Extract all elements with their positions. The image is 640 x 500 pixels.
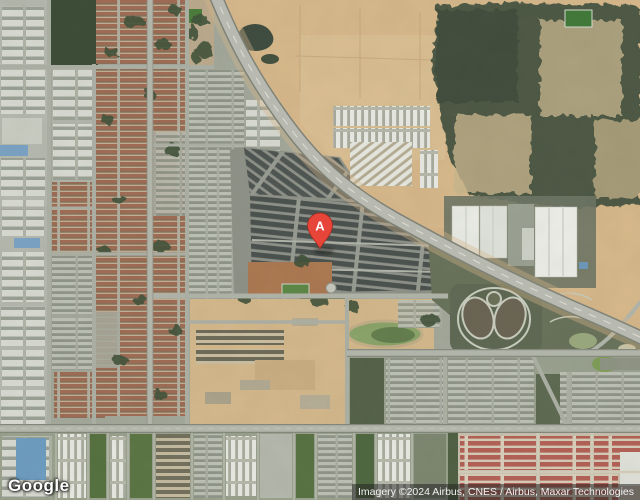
satellite-map[interactable]: A Google Imagery ©2024 Airbus, CNES / Ai… (0, 0, 640, 500)
imagery-attribution: Imagery ©2024 Airbus, CNES / Airbus, Max… (352, 484, 640, 500)
map-marker-a[interactable]: A (307, 212, 333, 251)
marker-pin-icon: A (307, 212, 333, 251)
marker-label: A (315, 219, 325, 234)
google-logo[interactable]: Google (8, 476, 70, 496)
